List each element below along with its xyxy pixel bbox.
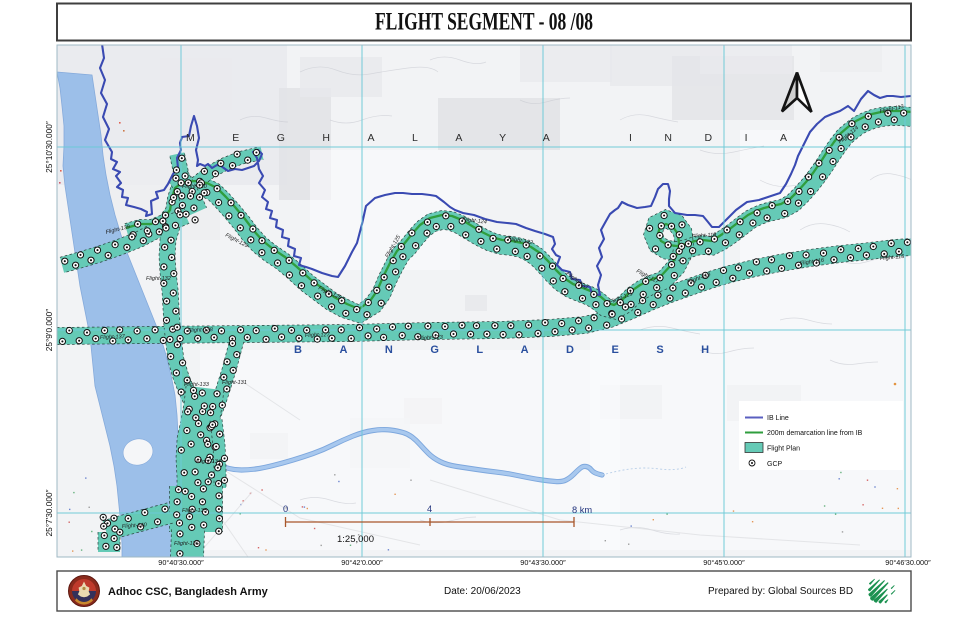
svg-text:1:25,000: 1:25,000 (337, 534, 374, 545)
svg-text:25°9'0.000″: 25°9'0.000″ (44, 309, 54, 352)
svg-text:25°7'30.000″: 25°7'30.000″ (44, 489, 54, 536)
svg-text:Flight-131: Flight-131 (222, 380, 247, 386)
svg-text:BANGLADESH: BANGLADESH (294, 344, 747, 356)
svg-text:IB Line: IB Line (767, 415, 789, 422)
svg-text:Prepared by: Global Sources BD: Prepared by: Global Sources BD (708, 586, 853, 597)
svg-text:90°45'0.000″: 90°45'0.000″ (703, 558, 745, 567)
svg-text:Adhoc CSC, Bangladesh Army: Adhoc CSC, Bangladesh Army (108, 586, 269, 598)
svg-text:Flight-135: Flight-135 (182, 508, 208, 514)
svg-text:90°46'30.000″: 90°46'30.000″ (885, 558, 931, 567)
svg-text:Flight-137: Flight-137 (100, 334, 126, 341)
svg-text:Flight-133: Flight-133 (184, 382, 210, 388)
svg-text:FLIGHT SEGMENT - 08 /08: FLIGHT SEGMENT - 08 /08 (375, 9, 593, 36)
svg-text:90°40'30.000″: 90°40'30.000″ (158, 558, 204, 567)
svg-text:Flight-127: Flight-127 (305, 332, 331, 339)
svg-text:Flight-132: Flight-132 (146, 276, 172, 282)
svg-text:Date: 20/06/2023: Date: 20/06/2023 (444, 586, 521, 597)
svg-text:MEGHALAYA: MEGHALAYA (186, 132, 587, 144)
svg-text:25°10'30.000″: 25°10'30.000″ (44, 121, 54, 173)
svg-text:8 km: 8 km (572, 505, 592, 515)
svg-text:90°42'0.000″: 90°42'0.000″ (341, 558, 383, 567)
svg-text:0: 0 (283, 504, 288, 514)
svg-text:GCP: GCP (767, 461, 783, 468)
svg-text:INDIA: INDIA (629, 132, 820, 144)
svg-text:Flight-136: Flight-136 (174, 541, 200, 547)
svg-text:Flight-134: Flight-134 (196, 459, 221, 465)
svg-text:Flight-128: Flight-128 (188, 327, 214, 334)
svg-text:90°43'30.000″: 90°43'30.000″ (520, 558, 566, 567)
svg-text:Flight-130: Flight-130 (182, 184, 208, 190)
svg-text:4: 4 (427, 504, 432, 514)
svg-text:200m demarcation line from IB: 200m demarcation line from IB (767, 430, 863, 437)
svg-text:Flight Plan: Flight Plan (767, 446, 800, 453)
